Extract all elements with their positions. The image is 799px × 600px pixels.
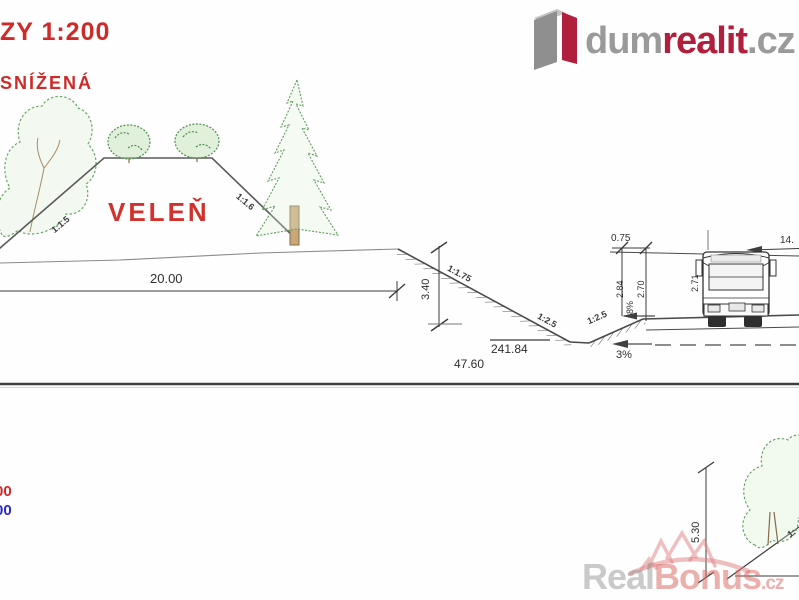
tree-left-icon <box>0 96 96 236</box>
watermark-word-gray: Real <box>582 556 654 597</box>
right-dim-partial: 14. <box>780 236 794 246</box>
brand-box-icon <box>534 9 577 70</box>
verge-grade-label: 8% <box>626 301 635 314</box>
road-grade-label: 3% <box>616 350 632 361</box>
elevation-blue-partial: 00 <box>0 503 12 518</box>
conifer-tree-icon <box>256 80 338 245</box>
drawing-canvas: ZY 1:200 SNÍŽENÁ VELEŇ dumrealit.cz 1:1.… <box>0 0 799 600</box>
cross-section-linework <box>0 0 799 600</box>
brand-tld: .cz <box>747 20 795 62</box>
watermark-logo: RealBonus.cz <box>582 556 783 598</box>
ditch-depth-dim: 3.40 <box>421 279 432 300</box>
verge-width-dim: 0.75 <box>611 234 630 244</box>
scale-title: ZY 1:200 <box>0 20 110 45</box>
watermark-word-red: Bonus <box>654 556 761 597</box>
lower-height-dim: 5.30 <box>691 522 702 543</box>
ditch-slopes-hatched <box>395 249 646 348</box>
terrain-line <box>0 249 398 263</box>
bush-right-icon <box>175 124 219 162</box>
edge-height-left-dim: 2.84 <box>616 280 625 298</box>
brand-word-red: realit <box>662 20 747 62</box>
total-width-dim: 47.60 <box>454 358 484 370</box>
mound-width-dim: 20.00 <box>150 272 183 285</box>
watermark-tld: .cz <box>761 573 783 594</box>
brand-logo: dumrealit.cz <box>585 20 795 63</box>
edge-height-right-dim: 2.70 <box>637 280 646 298</box>
elevation-red-partial: 00 <box>0 484 12 499</box>
place-label: VELEŇ <box>108 199 210 225</box>
vehicle-height-dim: 2.71 <box>691 274 700 292</box>
variant-title: SNÍŽENÁ <box>0 74 93 92</box>
bottom-level-label: 241.84 <box>491 343 528 355</box>
brand-word-gray: dum <box>585 20 662 62</box>
bus-drawing <box>696 252 776 327</box>
